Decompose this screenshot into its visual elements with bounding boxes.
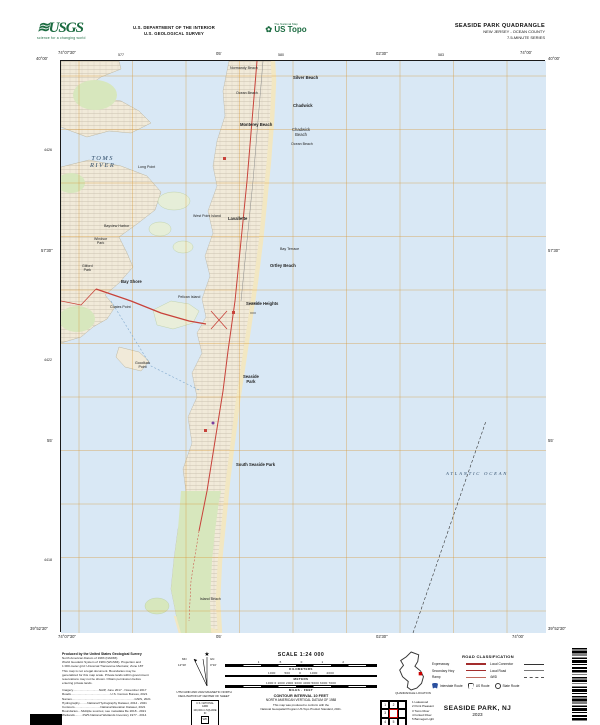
label-seaside-park: Seaside Park: [243, 375, 259, 385]
gn-label: GN: [210, 658, 214, 662]
utm-easting-577: 577: [118, 53, 124, 57]
left-tick-55: 55': [47, 438, 52, 443]
water-bay-ocean: [61, 61, 546, 633]
landmark-square-1: [223, 157, 226, 160]
label-coates-point: Coates Point: [110, 305, 131, 309]
ne-latitude: 40°00': [548, 56, 560, 61]
local-road-line: [524, 670, 544, 671]
label-windsor-park: Windsor Park: [94, 237, 107, 245]
label-monterey-beach: Monterey Beach: [240, 123, 272, 128]
dept-line2: U.S. GEOLOGICAL SURVEY: [106, 31, 242, 37]
utm-northing-4418: 4418: [44, 558, 52, 562]
nw-longitude: 74°07'30": [58, 50, 76, 55]
conformance-note: This map was produced to conform with th…: [225, 704, 377, 712]
adj-cell-blank1: [398, 701, 406, 709]
adj-cell-3: 3: [381, 709, 389, 717]
usgs-topo-sheet: ≋USGS science for a changing world U.S. …: [0, 0, 600, 725]
water-tank-dot: [212, 422, 215, 425]
label-bay-terrace: Bay Terrace: [280, 247, 299, 251]
usgs-logo-text: USGS: [49, 20, 83, 36]
label-chadwick-beach: Chadwick Beach: [292, 128, 310, 138]
utm-northing-4422: 4422: [44, 358, 52, 362]
department-heading: U.S. DEPARTMENT OF THE INTERIOR U.S. GEO…: [106, 25, 242, 38]
ne-longitude: 74°00': [520, 50, 532, 55]
metadata-barcode: [572, 648, 587, 722]
usng-square-id: WK: [201, 716, 209, 724]
sheet-title-block: SEASIDE PARK, NJ 2023: [430, 705, 525, 717]
label-lavallette: Lavallette: [228, 217, 247, 222]
scale-block: SCALE 1:24 000 1 .5 0 1 2 KILOMETERS 100…: [225, 652, 377, 711]
label-normandy-beach: Normandy Beach: [230, 66, 258, 70]
road-classification: ROAD CLASSIFICATION Expressway Secondary…: [432, 654, 544, 689]
adj-cell-this-quad: [389, 709, 397, 717]
production-credits: Produced by the United States Geological…: [62, 652, 190, 717]
sw-latitude: 39°52'30": [30, 626, 48, 631]
ustopo-logo: The National Map ✿ US Topo: [260, 22, 312, 34]
adj-cell-1: 1: [381, 701, 389, 709]
adj-cell-5: 5: [389, 718, 397, 725]
local-connector-label: Local Connector: [490, 662, 524, 666]
interstate-route-label: Interstate Route: [440, 684, 463, 688]
true-north-star-icon: ★: [204, 651, 209, 658]
bottom-tick-0230: 02'30": [376, 634, 388, 639]
woodland-north: [73, 80, 117, 110]
adjoining-quad-grid: 1 2 3 4 5: [380, 700, 407, 725]
credits-body: North American Datum of 1983 (NAD83) Wor…: [62, 656, 190, 685]
ft-label: FEET: [304, 688, 313, 692]
sw-longitude: 74°07'30": [58, 634, 76, 639]
label-silver-beach: Silver Beach: [293, 76, 318, 81]
gn-value: 0°16': [210, 664, 217, 668]
sedge-island: [145, 598, 169, 614]
label-ortley-beach: Ortley Beach: [270, 264, 296, 269]
label-long-point: Long Point: [138, 165, 155, 169]
quad-location-marker: [419, 672, 422, 675]
label-atlantic-ocean: ATLANTIC OCEAN: [446, 471, 508, 476]
expressway-line: [466, 663, 486, 665]
mi-label: MILES: [289, 688, 300, 692]
label-west-point-island: West Point Island: [193, 214, 221, 218]
ramp-label: Ramp: [432, 675, 466, 679]
usng-box: U.S. NATIONAL GRID 100,000-m SQUARE ID W…: [191, 700, 219, 725]
landmark-square-2: [232, 311, 235, 314]
vertical-datum: NORTH AMERICAN VERTICAL DATUM OF 1988: [225, 698, 377, 702]
interstate-shield-icon: [432, 683, 438, 689]
ustopo-label: US Topo: [274, 25, 306, 34]
road-class-title: ROAD CLASSIFICATION: [432, 654, 544, 659]
mn-label: MN: [182, 658, 187, 662]
adj-cell-blank2: [398, 709, 406, 717]
map-graphic: [61, 61, 546, 633]
se-longitude: 74°00': [512, 634, 524, 639]
mn-value: 12°30': [178, 664, 186, 668]
label-chadwick: Chadwick: [293, 104, 313, 109]
marsh-island-3: [173, 241, 193, 253]
declination-arrows: ★: [186, 650, 222, 690]
adj-cell-4: 4: [381, 718, 389, 725]
secondary-label: Secondary Hwy: [432, 669, 466, 673]
label-goodluck-point: Goodluck Point: [135, 361, 150, 369]
left-tick-5730: 57'30": [41, 248, 53, 253]
top-tick-0230: 02'30": [376, 51, 388, 56]
marsh-island-1: [158, 192, 190, 210]
quad-location-caption: QUADRANGLE LOCATION: [384, 692, 442, 696]
label-toms-river: TOMS RIVER: [90, 155, 115, 169]
us-route-label: US Route: [476, 684, 490, 688]
registration-mark: [30, 714, 62, 725]
label-ocean-beach-s: Ocean Beach: [291, 142, 313, 146]
usgs-wave-icon: ≋: [37, 20, 49, 36]
us-route-shield-icon: [468, 683, 474, 689]
se-latitude: 39°52'30": [548, 626, 566, 631]
label-pelican-island: Pelican Island: [178, 295, 200, 299]
local-road-label: Local Road: [490, 669, 524, 673]
right-tick-55: 55': [548, 438, 553, 443]
nw-latitude: 40°00': [36, 56, 48, 61]
label-south-seaside-park: South Seaside Park: [236, 463, 275, 468]
label-ocean-beach-n: Ocean Beach: [236, 91, 258, 95]
fwd-label: 4WD: [490, 675, 524, 679]
adj-cell-blank3: [398, 718, 406, 725]
landmark-square-3: [204, 429, 207, 432]
nj-outline: [394, 650, 432, 692]
local-connector-line: [524, 664, 544, 665]
sheet-year: 2023: [430, 712, 525, 717]
declination-diagram: ★ MN 12°30' GN 0°16': [186, 650, 222, 695]
label-seaside-heights: Seaside Heights: [246, 302, 278, 307]
right-tick-5730: 57'30": [548, 248, 560, 253]
ustopo-flower-icon: ✿: [265, 25, 274, 34]
label-island-beach: Island Beach: [200, 597, 221, 601]
state-route-label: State Route: [503, 684, 520, 688]
utm-easting-583: 583: [438, 53, 444, 57]
expressway-label: Expressway: [432, 662, 466, 666]
marsh-island-2: [149, 222, 171, 236]
bottom-tick-05: 05': [216, 634, 221, 639]
scale-title: SCALE 1:24 000: [225, 652, 377, 658]
fwd-line: [524, 677, 544, 678]
top-tick-05: 05': [216, 51, 221, 56]
label-bayview-harbor: Bayview Harbor: [104, 224, 129, 228]
label-bay-shore: Bay Shore: [121, 280, 142, 285]
adj-cell-2: 2: [389, 701, 397, 709]
utm-northing-4426: 4426: [44, 148, 52, 152]
state-route-circle-icon: [495, 683, 501, 689]
quad-series: 7.5-MINUTE SERIES: [395, 35, 545, 41]
state-locator: [394, 650, 432, 697]
quad-title-block: SEASIDE PARK QUADRANGLE NEW JERSEY - OCE…: [395, 23, 545, 42]
ramp-line: [466, 677, 486, 678]
usgs-logo: ≋USGS science for a changing world: [37, 21, 86, 40]
utm-easting-580: 580: [278, 53, 284, 57]
label-gilford-park: Gilford Park: [82, 264, 93, 272]
usng-subtitle: 100,000-m SQUARE ID: [193, 709, 217, 716]
usgs-tagline: science for a changing world: [37, 36, 86, 40]
secondary-line: [466, 670, 486, 671]
sheet-title: SEASIDE PARK, NJ: [430, 705, 525, 712]
